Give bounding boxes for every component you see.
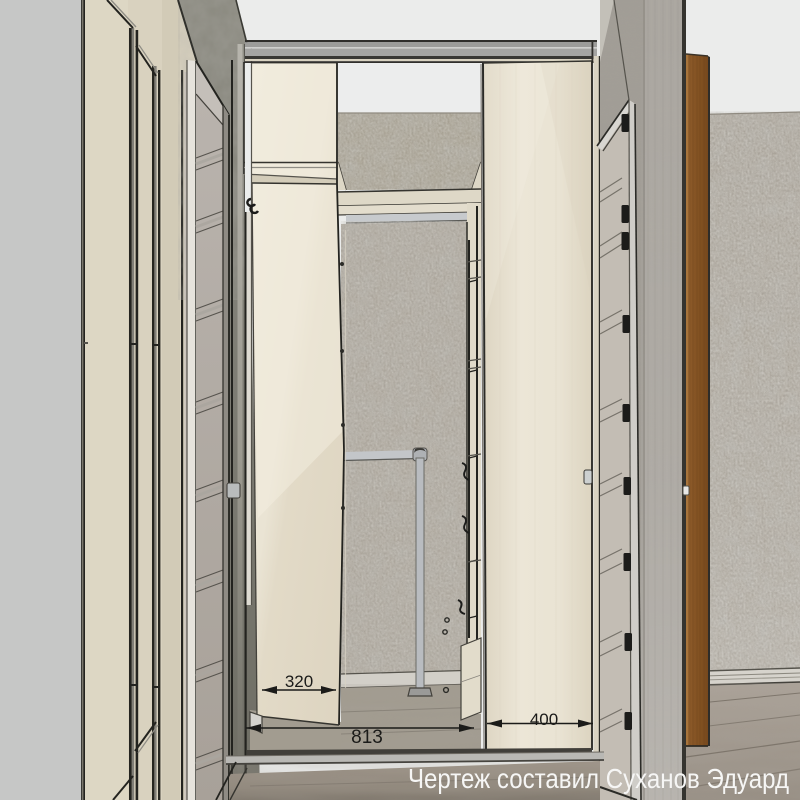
svg-text:813: 813	[351, 727, 383, 748]
svg-text:320: 320	[285, 672, 313, 691]
svg-text:Чертеж составил Суханов Эдуард: Чертеж составил Суханов Эдуард	[408, 763, 789, 794]
svg-text:400: 400	[530, 710, 558, 729]
